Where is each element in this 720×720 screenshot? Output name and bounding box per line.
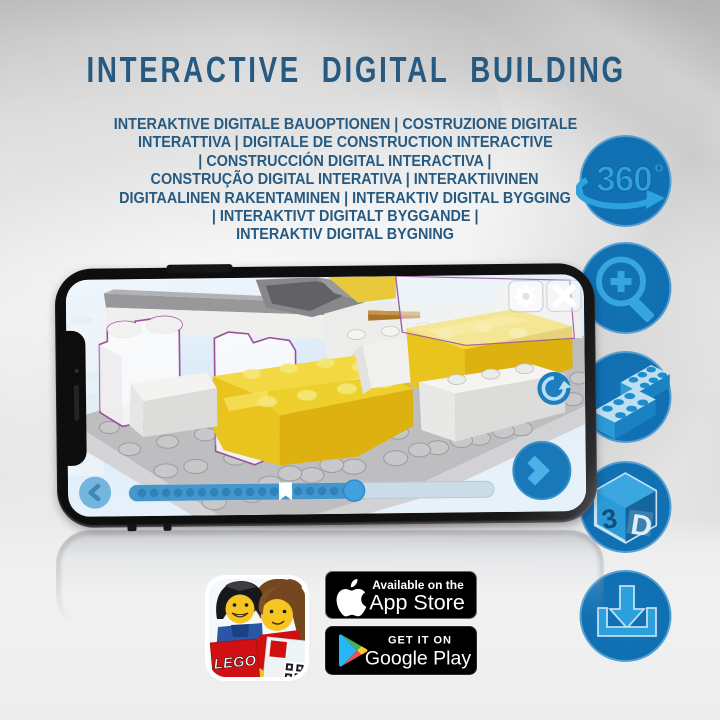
svg-text:360: 360 <box>596 160 652 199</box>
svg-text:o: o <box>654 159 663 176</box>
svg-text:GET IT ON: GET IT ON <box>388 635 452 647</box>
svg-text:Google Play: Google Play <box>365 648 471 670</box>
svg-text:App Store: App Store <box>369 591 465 615</box>
